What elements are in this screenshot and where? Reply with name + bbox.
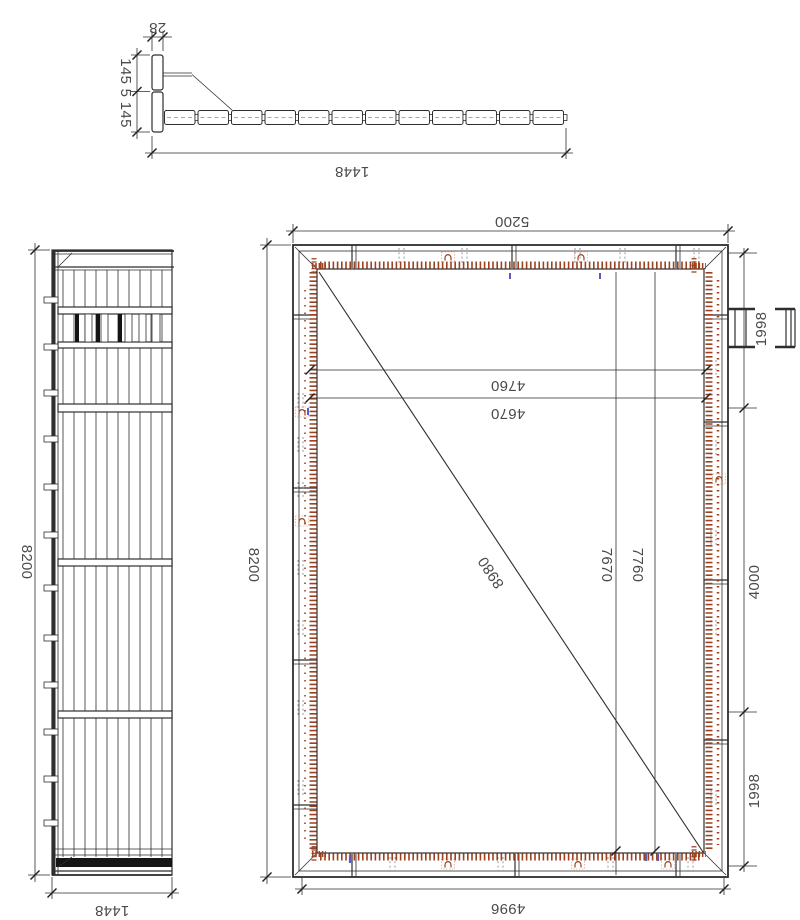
dim-7670: 7670 [598, 548, 615, 583]
dim-8200-side: 8200 [18, 545, 35, 580]
side-bottom-plate [56, 858, 172, 867]
dim-1448-section: 1448 [335, 163, 370, 180]
front-dim-bottom: 4996 [295, 877, 731, 917]
cad-drawing: 28 145 5 145 [0, 0, 800, 920]
section-dim-boards: 145 5 145 [117, 48, 150, 139]
dim-1998-bottom: 1998 [746, 774, 763, 809]
front-dim-left: 8200 [245, 238, 291, 884]
dim-4996: 4996 [491, 900, 526, 917]
section-dim-length: 1448 [145, 128, 573, 180]
dim-8200-front: 8200 [245, 548, 262, 583]
dim-4000: 4000 [746, 565, 763, 600]
dim-1998-top: 1998 [753, 312, 770, 347]
plank-row [165, 111, 568, 125]
dim-28: 28 [149, 19, 166, 36]
side-dim-height: 8200 [18, 243, 50, 882]
drawing-canvas: 28 145 5 145 [0, 0, 800, 920]
front-elevation-view: 5200 8200 [245, 213, 795, 917]
dim-4670: 4670 [491, 405, 526, 422]
side-dim-width: 1448 [45, 877, 179, 919]
front-dim-top: 5200 [286, 213, 735, 243]
dim-145-5-145: 145 5 145 [117, 58, 134, 127]
dim-5200: 5200 [495, 213, 530, 230]
dim-1448-side: 1448 [95, 902, 130, 919]
dim-7760: 7760 [629, 548, 646, 583]
edge-board-stack [152, 55, 163, 132]
section-view: 28 145 5 145 [117, 19, 573, 180]
side-panel [44, 250, 174, 875]
leader-line [163, 73, 232, 110]
side-elevation-view: 8200 [18, 243, 179, 919]
section-dim-thickness: 28 [143, 19, 172, 51]
dim-4760: 4760 [491, 377, 526, 394]
